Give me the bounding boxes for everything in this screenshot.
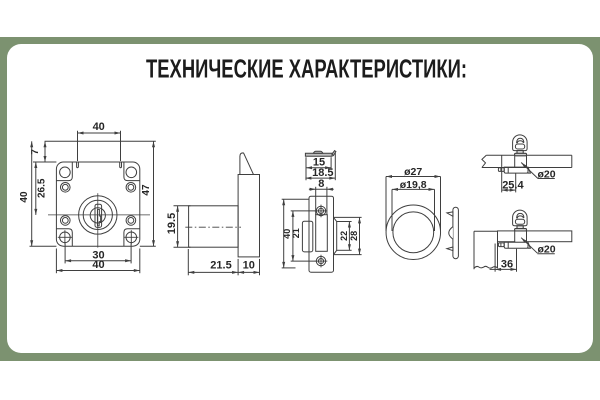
svg-text:21.5: 21.5 xyxy=(210,260,231,272)
svg-text:ø20: ø20 xyxy=(537,244,555,256)
svg-text:ТЕХНИЧЕСКИЕ ХАРАКТЕРИСТИКИ:: ТЕХНИЧЕСКИЕ ХАРАКТЕРИСТИКИ: xyxy=(146,56,467,84)
svg-text:40: 40 xyxy=(92,259,104,271)
svg-text:47: 47 xyxy=(141,184,152,196)
svg-text:25.4: 25.4 xyxy=(502,179,524,191)
svg-text:19.5: 19.5 xyxy=(166,213,178,234)
svg-text:ø19,8: ø19,8 xyxy=(400,179,427,191)
svg-text:ø20: ø20 xyxy=(537,169,555,181)
svg-text:8: 8 xyxy=(318,178,324,190)
svg-text:21: 21 xyxy=(291,228,301,238)
svg-text:22: 22 xyxy=(339,231,349,241)
svg-text:26.5: 26.5 xyxy=(36,178,47,198)
svg-text:40: 40 xyxy=(19,191,30,203)
svg-text:ø27: ø27 xyxy=(404,166,422,178)
svg-text:28: 28 xyxy=(349,231,359,241)
svg-text:10: 10 xyxy=(243,260,255,272)
svg-text:36: 36 xyxy=(501,259,513,271)
svg-text:40: 40 xyxy=(93,121,105,133)
